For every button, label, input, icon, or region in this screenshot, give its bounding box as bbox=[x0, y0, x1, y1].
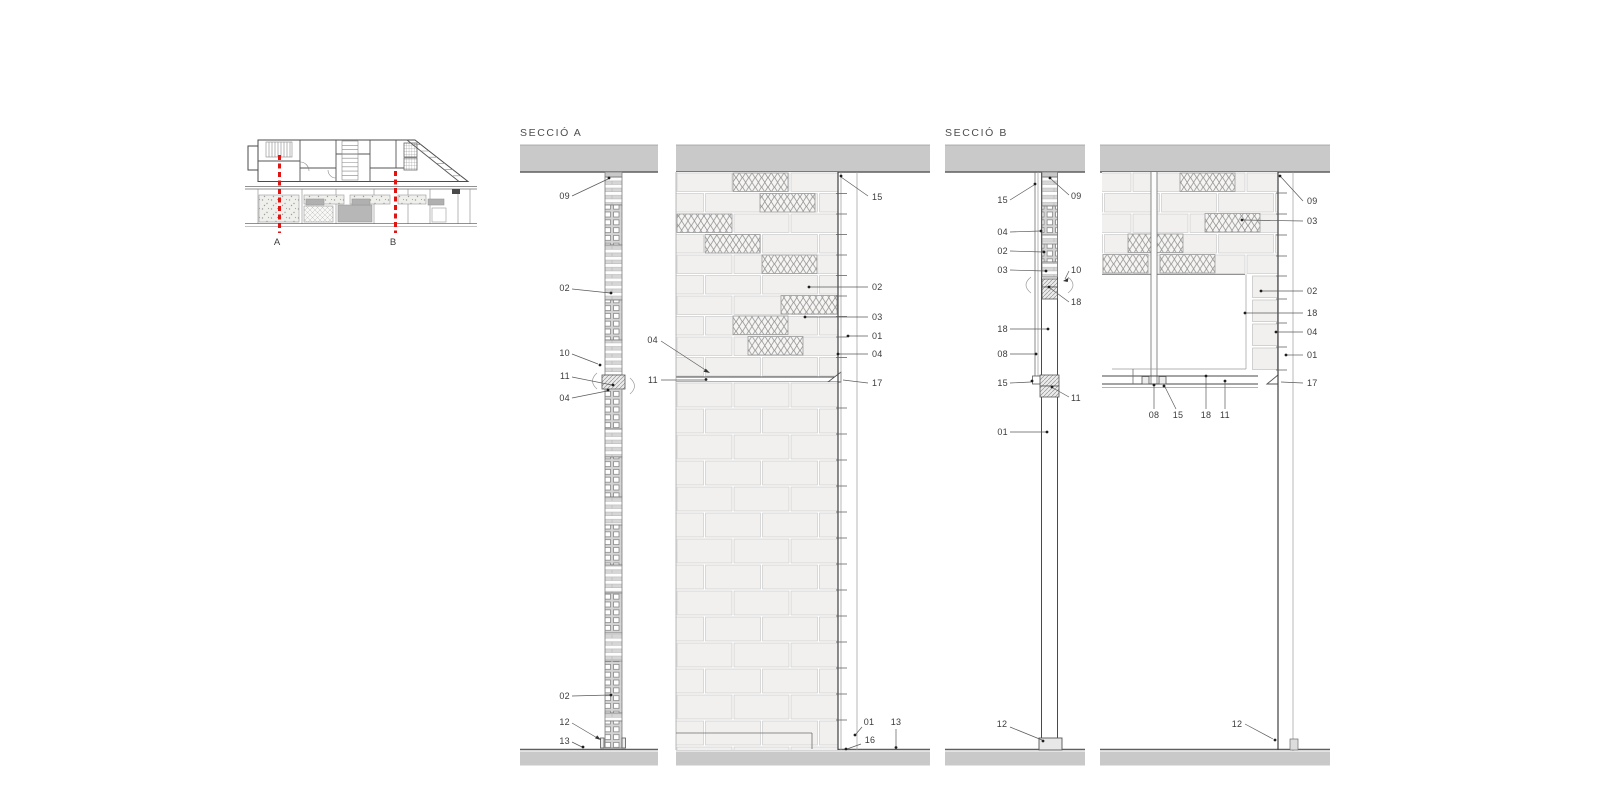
facade-lintel bbox=[306, 199, 324, 205]
callout-13: 13 bbox=[559, 736, 570, 746]
sill-clip bbox=[1142, 377, 1149, 385]
anchor-block bbox=[1040, 375, 1059, 386]
base-block bbox=[1290, 739, 1298, 750]
callout-02: 02 bbox=[559, 283, 570, 293]
base-clip bbox=[601, 738, 605, 748]
ceiling-slab bbox=[520, 145, 658, 172]
callout-04: 04 bbox=[647, 335, 658, 345]
callout-04: 04 bbox=[872, 349, 883, 359]
callout-03: 03 bbox=[1307, 216, 1318, 226]
sill-band bbox=[1102, 369, 1278, 388]
anchor-block bbox=[602, 375, 625, 389]
callout-15: 15 bbox=[997, 195, 1008, 205]
pier-stack bbox=[1026, 172, 1073, 750]
floor-slab bbox=[1100, 750, 1330, 766]
floor-slab bbox=[520, 750, 658, 766]
ceiling-slab bbox=[676, 145, 930, 172]
callout-03: 03 bbox=[997, 265, 1008, 275]
callout-15: 15 bbox=[997, 378, 1008, 388]
callout-12: 12 bbox=[1232, 719, 1243, 729]
mullion-post bbox=[1151, 172, 1157, 384]
callout-08: 08 bbox=[1149, 410, 1160, 420]
callout-18: 18 bbox=[1071, 297, 1082, 307]
floor-slab bbox=[676, 750, 930, 766]
callout-10: 10 bbox=[559, 348, 570, 358]
plan-core-cell bbox=[404, 158, 417, 170]
ceiling-slab bbox=[1100, 145, 1330, 172]
facade-mark bbox=[452, 189, 460, 194]
plan-annex bbox=[248, 146, 258, 170]
jamb-bricks bbox=[1253, 276, 1278, 370]
callout-04: 04 bbox=[559, 393, 570, 403]
callout-18: 18 bbox=[1201, 410, 1212, 420]
floor-slabs bbox=[520, 750, 1330, 766]
architectural-drawing-sheet: A B SECCIÓ A SECCIÓ B bbox=[0, 0, 1612, 806]
section-b-pier-section: 15 09 04 02 03 10 18 18 08 15 11 01 12 bbox=[997, 172, 1082, 750]
facade-panel bbox=[259, 195, 426, 222]
section-a-wall-elevation: 15 02 03 01 04 17 04 11 01 13 16 bbox=[647, 172, 901, 751]
callout-08: 08 bbox=[997, 349, 1008, 359]
callouts-d3: 15 09 04 02 03 10 18 18 08 15 11 01 12 bbox=[997, 177, 1082, 743]
sill-clip bbox=[1159, 377, 1166, 385]
section-b-wall-elevation: 09 03 02 18 04 01 17 08 15 18 11 12 bbox=[1102, 172, 1318, 751]
callout-11: 11 bbox=[560, 371, 570, 381]
section-b-title: SECCIÓ B bbox=[945, 126, 1008, 139]
callout-11: 11 bbox=[1220, 410, 1230, 420]
lattice-pier bbox=[593, 172, 635, 748]
callout-09: 09 bbox=[559, 191, 570, 201]
brick-wall-lower bbox=[676, 382, 838, 750]
callout-13: 13 bbox=[891, 717, 902, 727]
ceiling-slabs bbox=[520, 145, 1330, 172]
callout-16: 16 bbox=[865, 735, 876, 745]
callout-04: 04 bbox=[997, 227, 1008, 237]
callout-02: 02 bbox=[1307, 286, 1318, 296]
callout-04: 04 bbox=[1307, 327, 1318, 337]
callout-15: 15 bbox=[872, 192, 883, 202]
facade-lintel bbox=[428, 199, 444, 205]
callout-12: 12 bbox=[559, 717, 570, 727]
callout-03: 03 bbox=[872, 312, 883, 322]
facade-door bbox=[432, 208, 446, 222]
callout-17: 17 bbox=[1307, 378, 1318, 388]
base-clip bbox=[622, 738, 626, 748]
section-a-title: SECCIÓ A bbox=[520, 126, 582, 139]
section-mark-a: A bbox=[274, 237, 281, 248]
callout-11: 11 bbox=[648, 375, 658, 385]
callout-18: 18 bbox=[1307, 308, 1318, 318]
callout-11: 11 bbox=[1071, 393, 1081, 403]
callout-02: 02 bbox=[559, 691, 570, 701]
callout-09: 09 bbox=[1307, 196, 1318, 206]
callout-18: 18 bbox=[997, 324, 1008, 334]
callout-10: 10 bbox=[1071, 265, 1082, 275]
callout-02: 02 bbox=[872, 282, 883, 292]
construction-detail-drawing: A B SECCIÓ A SECCIÓ B bbox=[0, 0, 1612, 806]
callout-17: 17 bbox=[872, 378, 883, 388]
floor-plan: A B bbox=[245, 140, 477, 248]
callout-12: 12 bbox=[997, 719, 1008, 729]
facade-lintel bbox=[352, 199, 370, 205]
section-a-pier-section: 09 02 10 11 04 02 12 13 bbox=[559, 172, 634, 748]
callout-01: 01 bbox=[872, 331, 883, 341]
ceiling-slab bbox=[945, 145, 1085, 172]
flashing bbox=[1267, 375, 1278, 384]
callout-01: 01 bbox=[1307, 350, 1318, 360]
floor-slab bbox=[945, 750, 1085, 766]
plan-core-cell bbox=[404, 143, 417, 157]
anchor-block bbox=[1042, 287, 1058, 299]
callout-15: 15 bbox=[1173, 410, 1184, 420]
callout-01: 01 bbox=[864, 717, 875, 727]
wall-opening bbox=[1102, 275, 1245, 370]
callout-09: 09 bbox=[1071, 191, 1082, 201]
section-mark-b: B bbox=[390, 237, 396, 248]
callout-02: 02 bbox=[997, 246, 1008, 256]
callout-01: 01 bbox=[997, 427, 1008, 437]
